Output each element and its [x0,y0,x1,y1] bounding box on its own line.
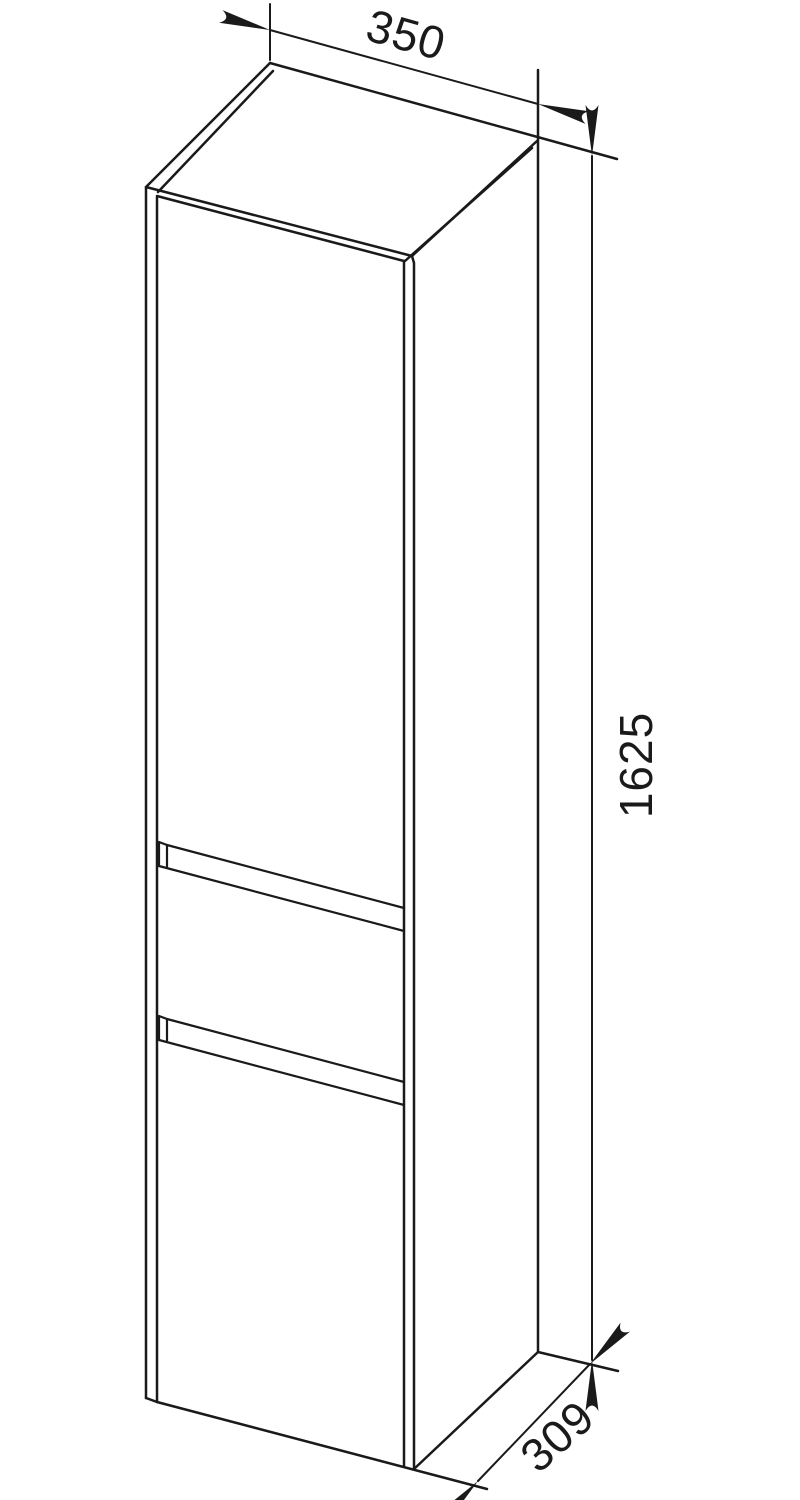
cabinet-front-face [146,188,487,1489]
dimension-width: 350 [270,0,538,104]
drawing-canvas: 350 1625 309 [0,0,800,1500]
upper-handle-groove [159,842,404,931]
side-bottom-corner-extension [538,1352,618,1371]
dimension-depth: 309 [478,1364,604,1482]
cabinet-dimension-drawing: 350 1625 309 [0,0,800,1500]
top-front-edge-outer [146,187,412,256]
lower-groove-left-notch [159,1016,167,1042]
upper-groove-left-notch [159,842,167,868]
top-left-edge-outer [146,63,270,187]
top-left-edge-inner [158,71,273,192]
dimension-height: 1625 [592,156,662,1360]
cabinet-side-face [414,70,618,1469]
depth-dimension-label: 309 [510,1390,604,1482]
top-front-edge-inner [157,196,404,261]
height-dimension-label: 1625 [610,712,662,818]
lower-handle-groove [159,1016,404,1105]
front-right-edge-outer [412,256,414,1469]
cabinet [146,63,618,1489]
top-right-edge-inner [405,148,532,261]
front-left-foot-step [146,1398,157,1402]
cabinet-top-panel [146,63,617,261]
